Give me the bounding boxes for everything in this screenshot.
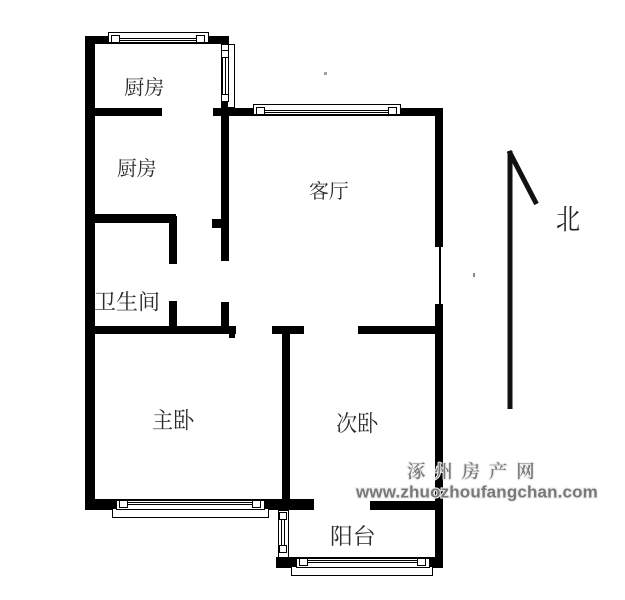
- svg-text:www.zhuozhoufangchan.com: www.zhuozhoufangchan.com: [355, 483, 598, 502]
